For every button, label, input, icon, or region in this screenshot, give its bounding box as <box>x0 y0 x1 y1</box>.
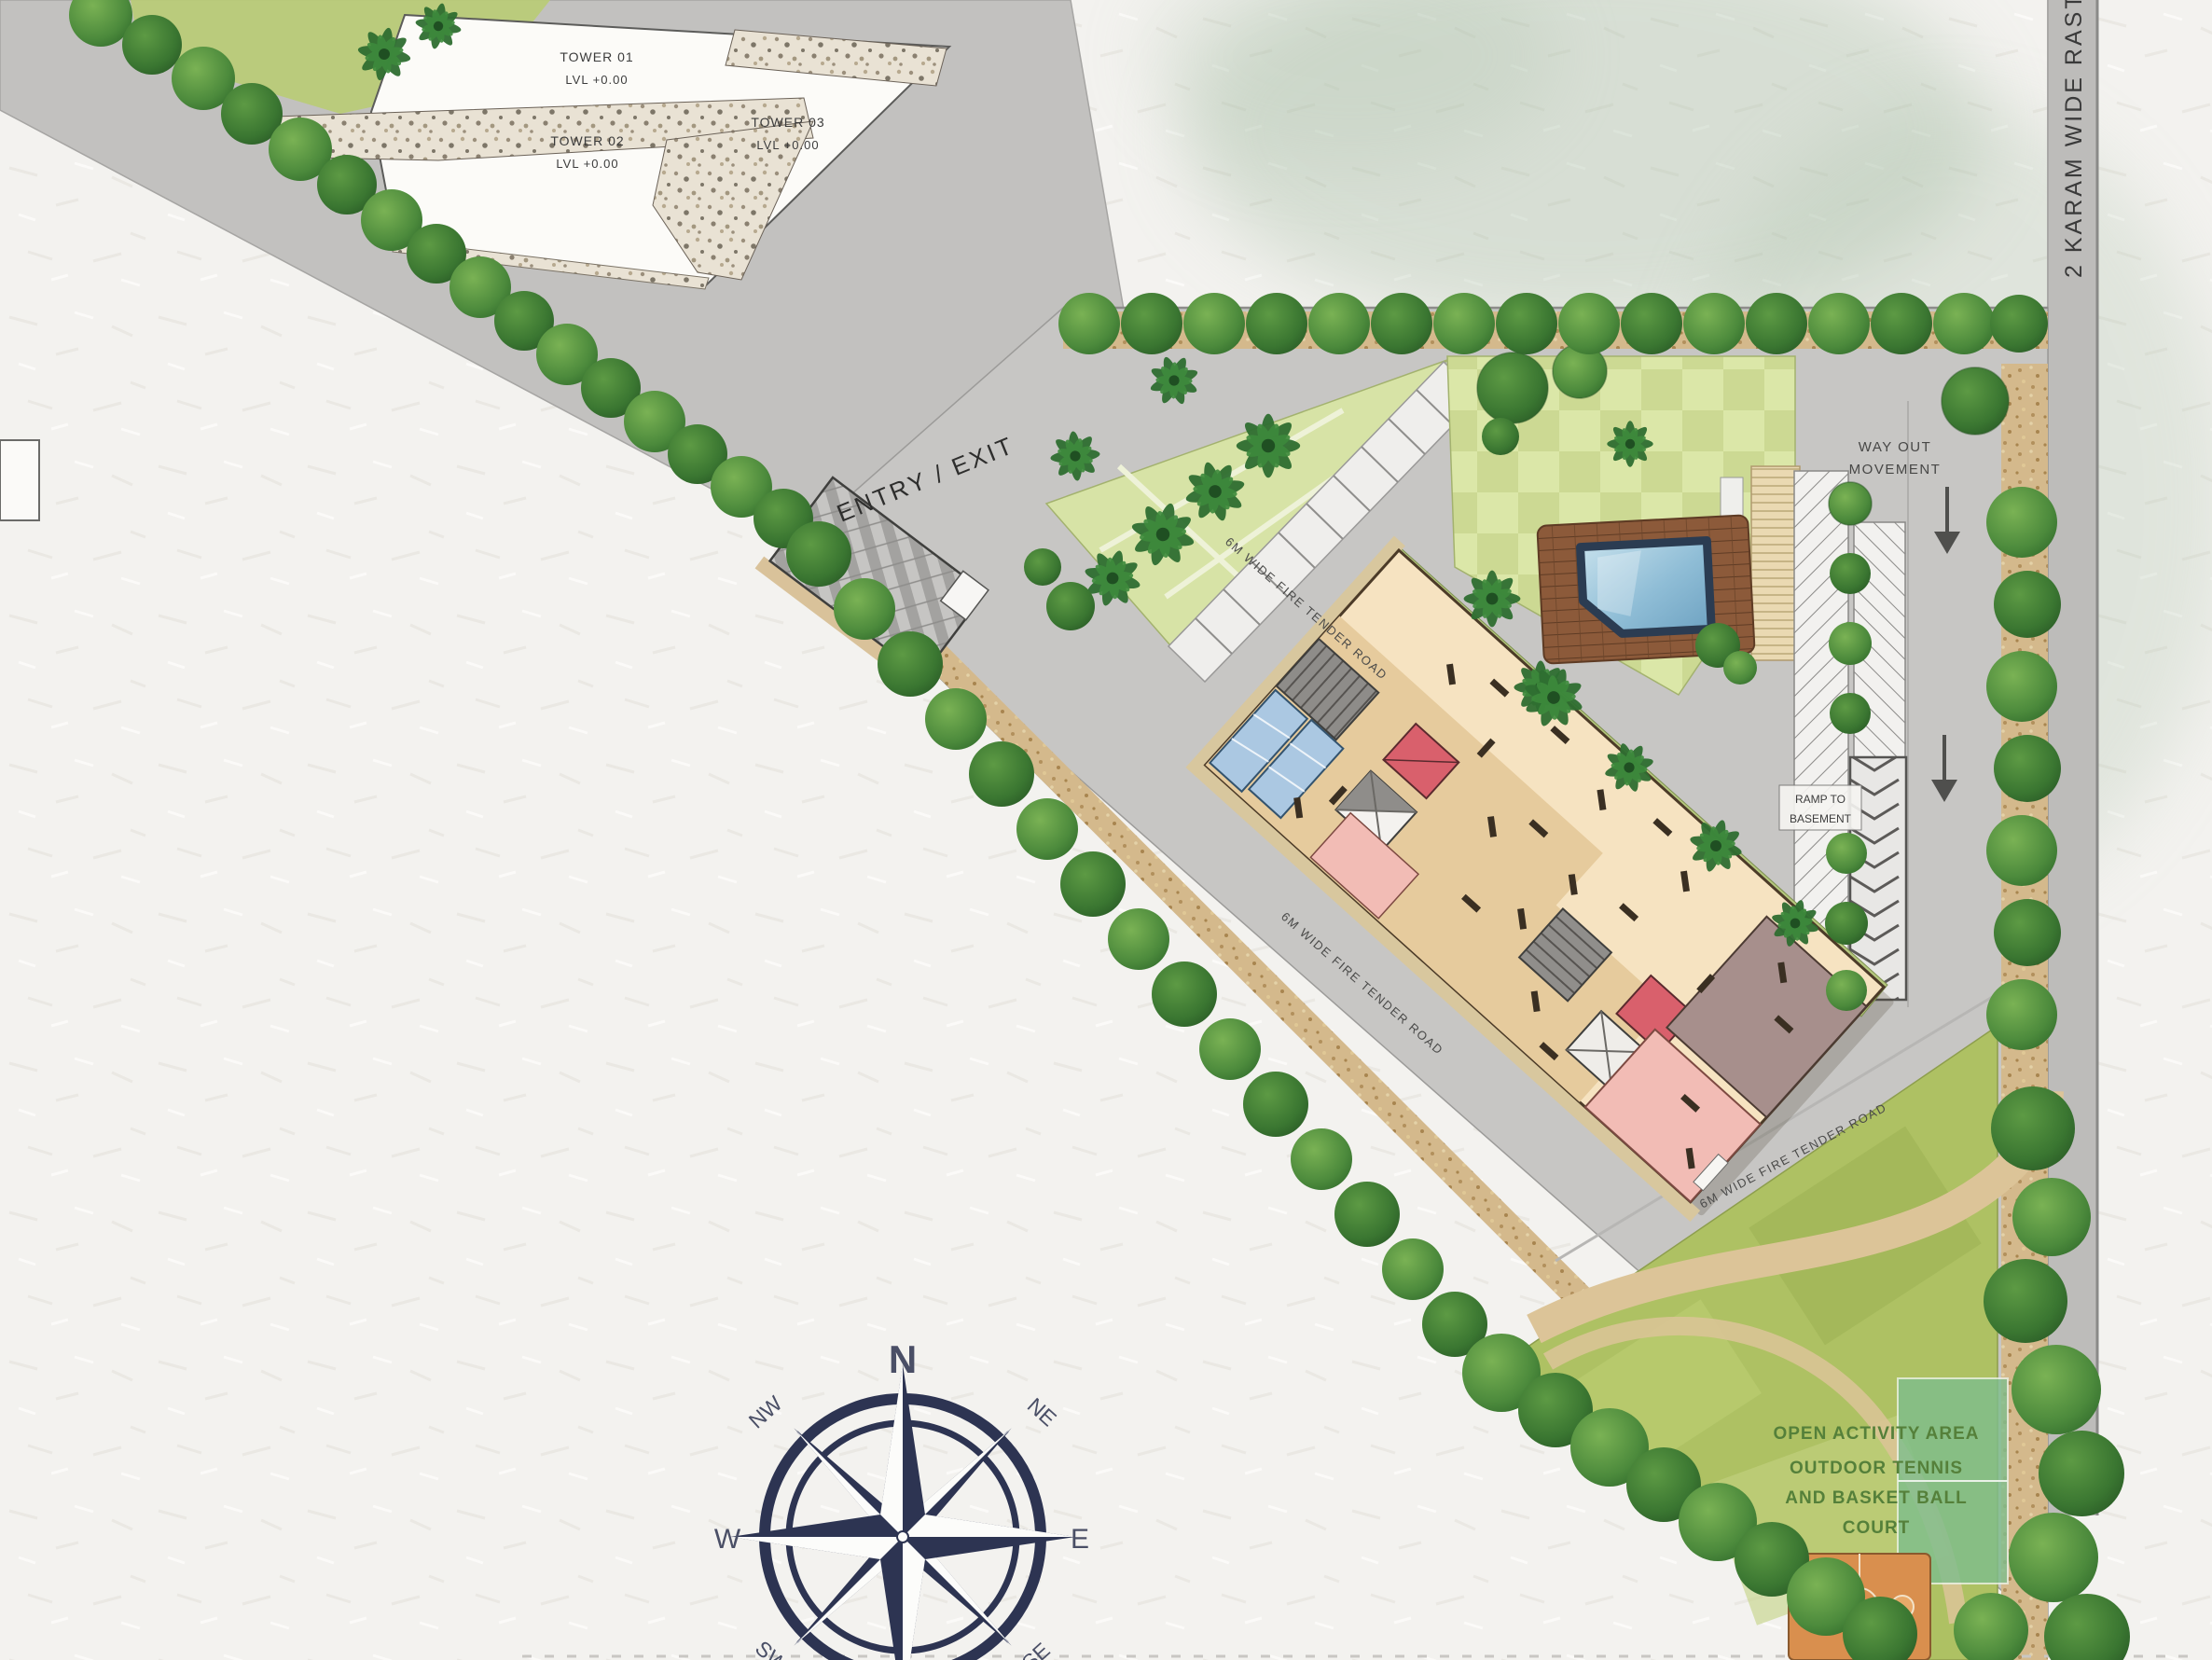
activity-label-line3: AND BASKET BALL <box>1785 1488 1968 1508</box>
tree <box>1829 622 1872 665</box>
tree <box>1291 1128 1352 1190</box>
plot-label-tower1-name: TOWER 01 <box>560 49 633 64</box>
compass-label-n: N <box>889 1337 917 1381</box>
tree <box>1683 293 1745 354</box>
tree <box>1243 1072 1308 1137</box>
tree <box>1371 293 1432 354</box>
palm-tree-icon <box>1237 414 1300 477</box>
adjacent-plot-west <box>0 440 39 520</box>
tree <box>1496 293 1557 354</box>
tree <box>2009 1513 2098 1602</box>
tree <box>1829 482 1872 525</box>
tree <box>925 688 987 750</box>
plot-label-tower1-level: LVL +0.00 <box>565 73 628 87</box>
tree <box>1108 908 1169 970</box>
compass-label-w: W <box>714 1524 741 1555</box>
tree <box>1986 815 2057 886</box>
tree <box>1933 293 1995 354</box>
activity-label-line4: COURT <box>1843 1518 1911 1538</box>
tree <box>2012 1178 2091 1256</box>
ramp-label-line2: BASEMENT <box>1790 812 1852 825</box>
ramp-label-line1: RAMP TO <box>1795 793 1846 806</box>
tree <box>1825 902 1868 945</box>
tree <box>1046 582 1095 630</box>
site-plan-drawing: TOWER 01 LVL +0.00 TOWER 02 LVL +0.00 TO… <box>0 0 2212 1660</box>
tree <box>1994 571 2061 638</box>
right-road-label: 2 KARAM WIDE RASTA <box>2061 0 2087 278</box>
tree <box>1060 851 1126 917</box>
compass-label-e: E <box>1071 1524 1089 1555</box>
tree <box>1986 487 2057 558</box>
tree <box>1871 293 1932 354</box>
tree <box>1152 961 1217 1027</box>
tree <box>1024 548 1061 586</box>
tree <box>1016 798 1078 860</box>
tree <box>1199 1018 1261 1080</box>
way-out-label-line1: WAY OUT <box>1859 439 1932 455</box>
palm-tree-icon <box>1464 571 1521 628</box>
tree <box>1830 553 1871 594</box>
tree <box>1482 418 1519 455</box>
tree <box>1986 979 2057 1050</box>
tree <box>1308 293 1370 354</box>
tree <box>1990 295 2048 353</box>
tree <box>1826 970 1867 1011</box>
plot-label-tower3-name: TOWER 03 <box>751 115 824 130</box>
plot-label-tower3-level: LVL +0.00 <box>756 138 819 152</box>
tree <box>1830 693 1871 734</box>
tree <box>1382 1238 1444 1300</box>
tree <box>1994 735 2061 802</box>
compass-hub <box>897 1531 908 1542</box>
tree <box>1826 833 1867 874</box>
tree <box>834 578 895 640</box>
tree <box>1986 651 2057 722</box>
plot-label-tower2-level: LVL +0.00 <box>556 157 618 171</box>
tree <box>1558 293 1620 354</box>
activity-label-line2: OUTDOOR TENNIS <box>1790 1459 1963 1478</box>
tree <box>1746 293 1807 354</box>
tree <box>1808 293 1870 354</box>
tree <box>878 631 943 697</box>
tree <box>2012 1345 2101 1434</box>
tree <box>1991 1086 2075 1170</box>
tree <box>1334 1182 1400 1247</box>
tree <box>1984 1259 2067 1343</box>
way-out-label-line2: MOVEMENT <box>1849 462 1942 477</box>
tree <box>1121 293 1182 354</box>
tree <box>1058 293 1120 354</box>
tree <box>122 15 182 75</box>
tree <box>1477 353 1548 423</box>
tree <box>2039 1431 2124 1516</box>
tree <box>1723 651 1757 685</box>
tree <box>1183 293 1245 354</box>
wood-deck <box>1751 466 1800 660</box>
tree <box>969 741 1034 807</box>
tree <box>1621 293 1682 354</box>
tree <box>1994 899 2061 966</box>
tree <box>786 521 851 587</box>
plot-label-tower2-name: TOWER 02 <box>550 133 624 148</box>
site-plan-canvas: TOWER 01 LVL +0.00 TOWER 02 LVL +0.00 TO… <box>0 0 2212 1660</box>
tree <box>1246 293 1307 354</box>
tree <box>1942 367 2009 435</box>
activity-label-line1: OPEN ACTIVITY AREA <box>1773 1424 1979 1444</box>
tree <box>1433 293 1495 354</box>
